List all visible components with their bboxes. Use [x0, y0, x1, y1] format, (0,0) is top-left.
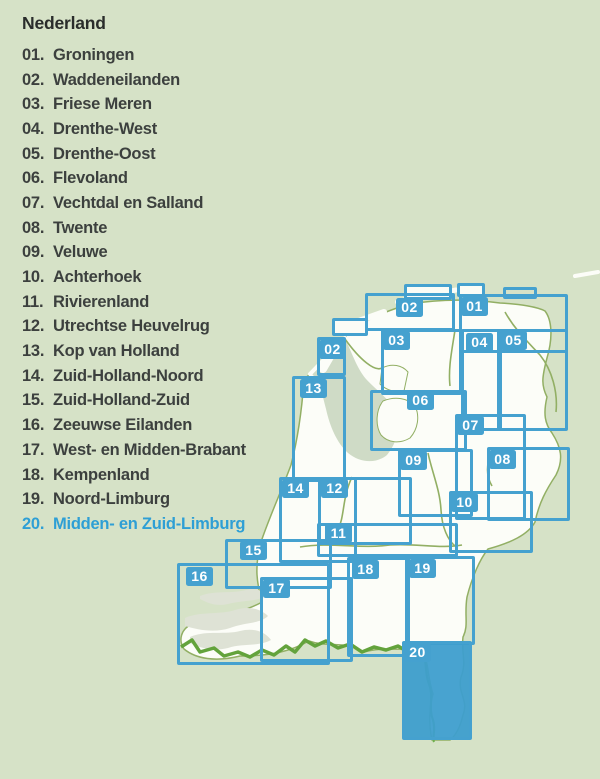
legend-item-number: 18.: [22, 466, 53, 485]
legend-item-number: 16.: [22, 416, 53, 435]
legend-item-number: 17.: [22, 441, 53, 460]
legend-item-number: 08.: [22, 219, 53, 238]
sheet-number-chip-20[interactable]: 20: [404, 643, 431, 662]
legend-item-12[interactable]: 12.Utrechtse Heuvelrug: [22, 315, 246, 340]
legend-item-name: Drenthe-West: [53, 120, 157, 139]
legend-item-19[interactable]: 19.Noord-Limburg: [22, 487, 246, 512]
sheet-number-chip-07[interactable]: 07: [457, 416, 484, 435]
legend-item-number: 09.: [22, 243, 53, 262]
legend: Nederland 01.Groningen02.Waddeneilanden0…: [22, 13, 246, 537]
legend-item-number: 07.: [22, 194, 53, 213]
map-index-page: 0201030204051306070809121410111516171819…: [0, 0, 600, 779]
legend-item-name: Noord-Limburg: [53, 490, 170, 509]
legend-item-name: Utrechtse Heuvelrug: [53, 317, 210, 336]
legend-item-08[interactable]: 08.Twente: [22, 216, 246, 241]
legend-item-10[interactable]: 10.Achterhoek: [22, 265, 246, 290]
legend-item-name: Groningen: [53, 46, 134, 65]
legend-list: 01.Groningen02.Waddeneilanden03.Friese M…: [22, 43, 246, 537]
legend-item-18[interactable]: 18.Kempenland: [22, 463, 246, 488]
sheet-number-chip-10[interactable]: 10: [451, 493, 478, 512]
legend-item-09[interactable]: 09.Veluwe: [22, 241, 246, 266]
legend-item-name: Vechtdal en Salland: [53, 194, 203, 213]
legend-item-name: Zuid-Holland-Zuid: [53, 391, 190, 410]
sheet-number-chip-12[interactable]: 12: [321, 479, 348, 498]
sheet-number-chip-19[interactable]: 19: [409, 559, 436, 578]
legend-item-03[interactable]: 03.Friese Meren: [22, 92, 246, 117]
legend-item-05[interactable]: 05.Drenthe-Oost: [22, 142, 246, 167]
legend-item-16[interactable]: 16.Zeeuwse Eilanden: [22, 413, 246, 438]
legend-item-20[interactable]: 20.Midden- en Zuid-Limburg: [22, 512, 246, 537]
sheet-number-chip-02-east[interactable]: 02: [396, 298, 423, 317]
legend-item-number: 15.: [22, 391, 53, 410]
sheet-number-chip-14[interactable]: 14: [282, 479, 309, 498]
sheet-number-chip-11[interactable]: 11: [325, 524, 352, 543]
sheet-number-chip-13[interactable]: 13: [300, 379, 327, 398]
sheet-number-chip-18[interactable]: 18: [352, 560, 379, 579]
legend-item-name: Zuid-Holland-Noord: [53, 367, 203, 386]
legend-item-number: 11.: [22, 293, 53, 312]
sheet-number-chip-05[interactable]: 05: [500, 331, 527, 350]
legend-item-number: 10.: [22, 268, 53, 287]
legend-item-number: 20.: [22, 515, 53, 534]
legend-item-02[interactable]: 02.Waddeneilanden: [22, 68, 246, 93]
legend-item-15[interactable]: 15.Zuid-Holland-Zuid: [22, 389, 246, 414]
legend-item-number: 12.: [22, 317, 53, 336]
legend-item-number: 19.: [22, 490, 53, 509]
legend-item-number: 04.: [22, 120, 53, 139]
sheet-number-chip-16[interactable]: 16: [186, 567, 213, 586]
sheet-number-chip-04[interactable]: 04: [466, 333, 493, 352]
legend-item-name: Twente: [53, 219, 107, 238]
legend-item-name: Veluwe: [53, 243, 107, 262]
legend-item-name: Kempenland: [53, 466, 150, 485]
legend-item-name: West- en Midden-Brabant: [53, 441, 246, 460]
legend-item-number: 05.: [22, 145, 53, 164]
legend-item-04[interactable]: 04.Drenthe-West: [22, 117, 246, 142]
sheet-number-chip-03[interactable]: 03: [383, 331, 410, 350]
sheet-number-chip-01[interactable]: 01: [461, 297, 488, 316]
legend-item-14[interactable]: 14.Zuid-Holland-Noord: [22, 364, 246, 389]
legend-item-name: Zeeuwse Eilanden: [53, 416, 192, 435]
sheet-number-chip-06[interactable]: 06: [407, 391, 434, 410]
legend-title: Nederland: [22, 13, 246, 34]
legend-item-number: 06.: [22, 169, 53, 188]
legend-item-13[interactable]: 13.Kop van Holland: [22, 339, 246, 364]
sheet-number-chip-02-west[interactable]: 02: [319, 340, 346, 359]
legend-item-17[interactable]: 17.West- en Midden-Brabant: [22, 438, 246, 463]
legend-item-name: Rivierenland: [53, 293, 149, 312]
legend-item-number: 02.: [22, 71, 53, 90]
legend-item-name: Flevoland: [53, 169, 128, 188]
legend-item-name: Drenthe-Oost: [53, 145, 155, 164]
sheet-number-chip-08[interactable]: 08: [489, 450, 516, 469]
legend-item-01[interactable]: 01.Groningen: [22, 43, 246, 68]
sheet-number-chip-15[interactable]: 15: [240, 541, 267, 560]
legend-item-name: Midden- en Zuid-Limburg: [53, 515, 245, 534]
sheet-number-chip-17[interactable]: 17: [263, 579, 290, 598]
legend-item-number: 01.: [22, 46, 53, 65]
legend-item-number: 14.: [22, 367, 53, 386]
sheet-number-chip-09[interactable]: 09: [400, 451, 427, 470]
legend-item-07[interactable]: 07.Vechtdal en Salland: [22, 191, 246, 216]
legend-item-name: Waddeneilanden: [53, 71, 180, 90]
legend-item-name: Achterhoek: [53, 268, 141, 287]
legend-item-name: Friese Meren: [53, 95, 152, 114]
legend-item-number: 13.: [22, 342, 53, 361]
legend-item-11[interactable]: 11.Rivierenland: [22, 290, 246, 315]
legend-item-06[interactable]: 06.Flevoland: [22, 166, 246, 191]
legend-item-name: Kop van Holland: [53, 342, 179, 361]
legend-item-number: 03.: [22, 95, 53, 114]
